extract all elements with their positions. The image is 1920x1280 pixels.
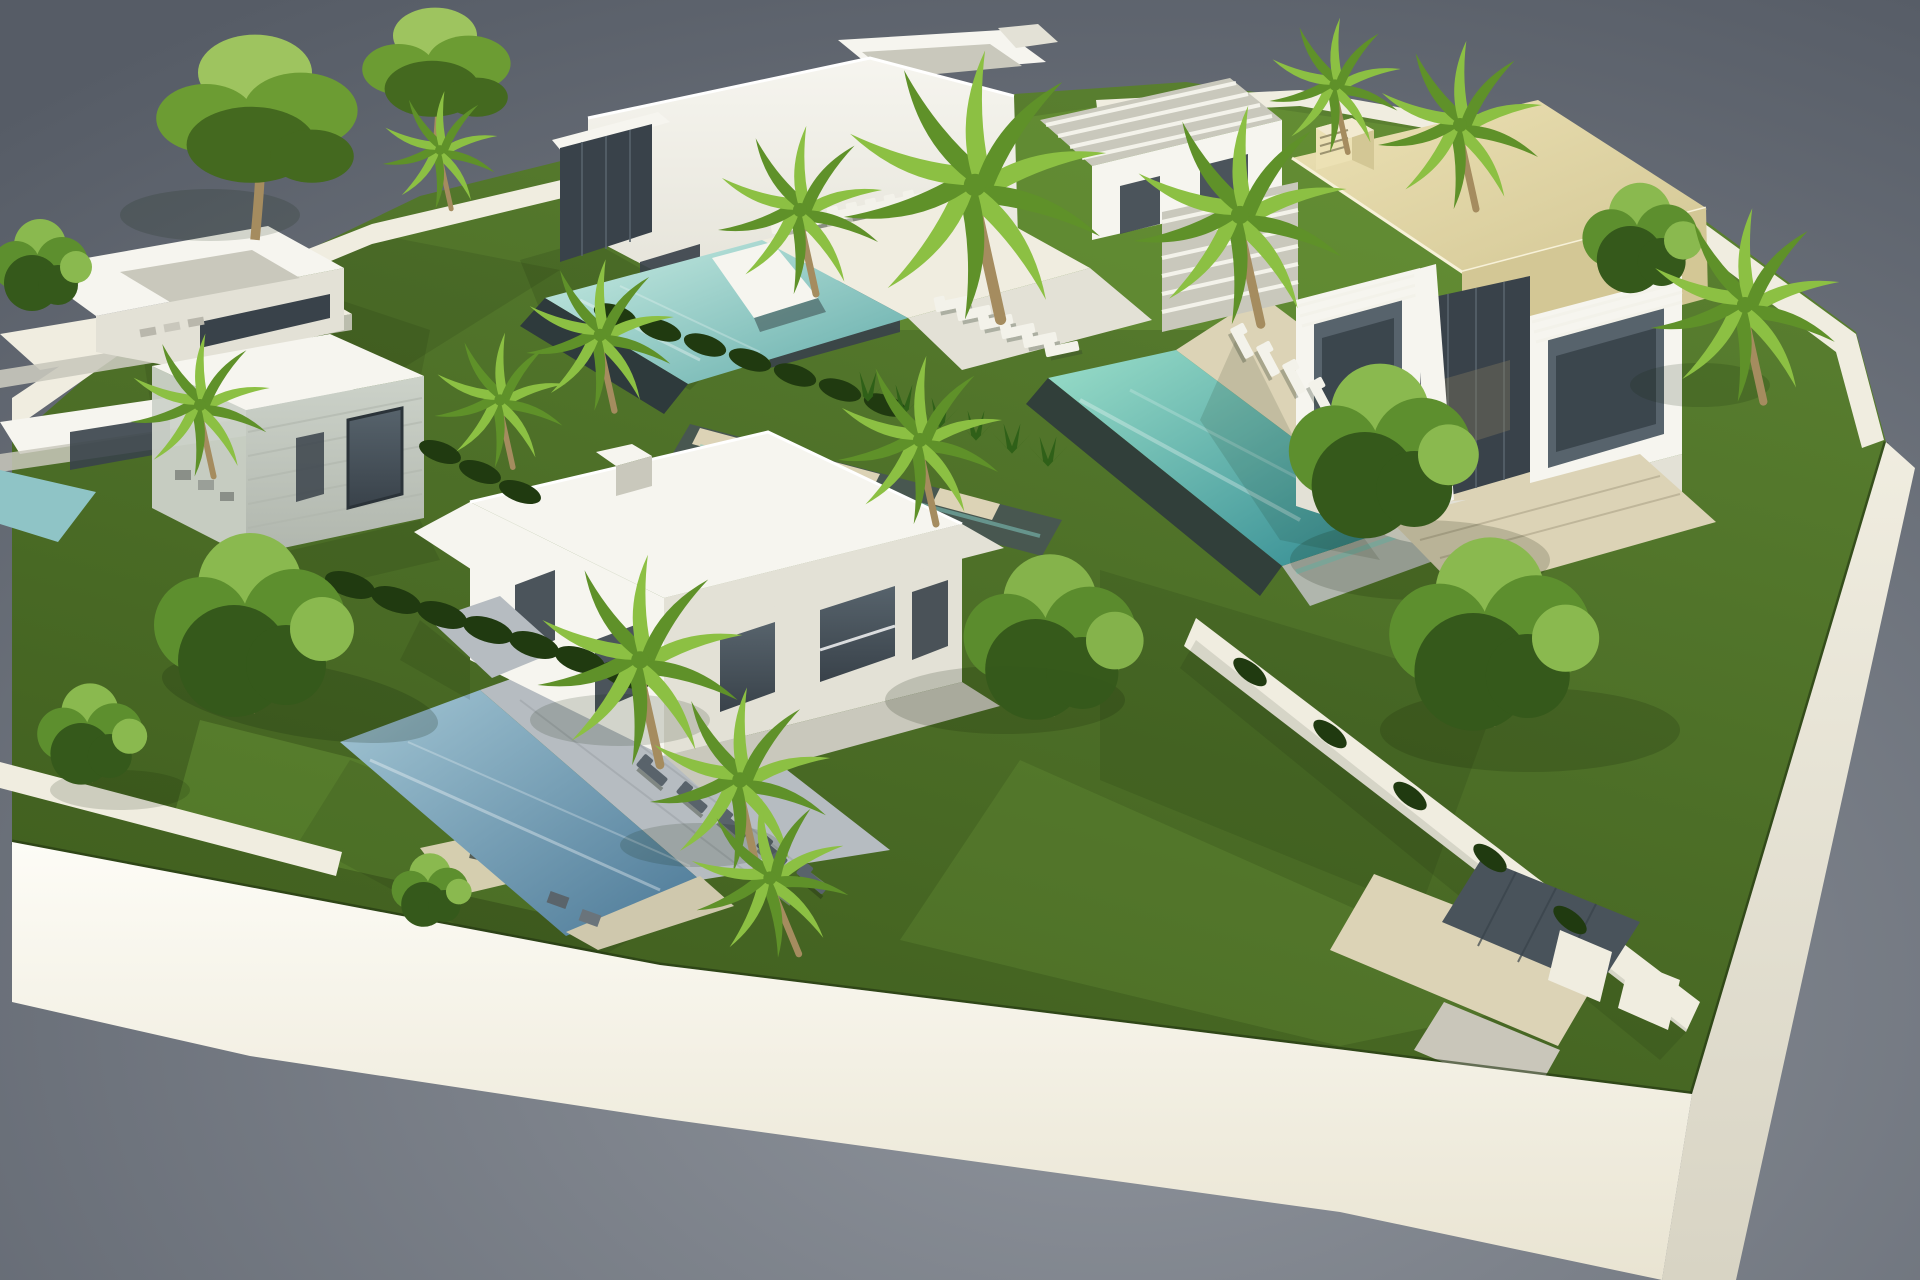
villa-development-render: Aerial 3D architectural rendering of a w… — [0, 0, 1920, 1280]
render-canvas — [0, 0, 1920, 1280]
garden-furniture — [175, 470, 191, 480]
tree-shadow — [120, 189, 300, 241]
tree-shadow — [1630, 363, 1770, 407]
window — [296, 432, 324, 502]
glass-door — [348, 408, 402, 508]
garden-furniture — [198, 480, 214, 490]
door — [912, 580, 948, 660]
garden-furniture — [220, 492, 234, 501]
